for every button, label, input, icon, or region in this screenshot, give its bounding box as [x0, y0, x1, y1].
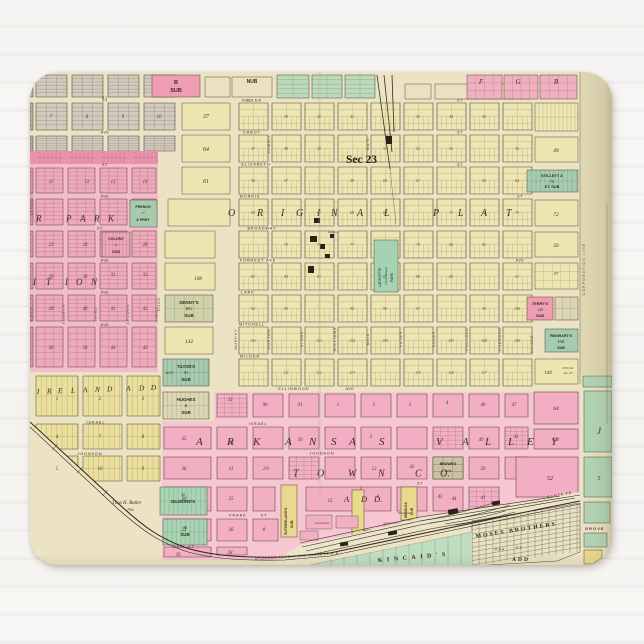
svg-text:SEVENTH: SEVENTH: [30, 192, 34, 215]
svg-text:SUB: SUB: [112, 250, 120, 254]
svg-text:47: 47: [512, 403, 517, 408]
svg-text:L: L: [484, 436, 491, 448]
svg-text:57: 57: [554, 271, 559, 276]
svg-text:ISRAEL: ISRAEL: [248, 422, 267, 426]
svg-text:88: 88: [416, 274, 420, 279]
svg-text:N: N: [90, 277, 98, 287]
svg-text:29: 29: [49, 275, 54, 280]
svg-text:Thos H. Butler: Thos H. Butler: [112, 501, 142, 506]
svg-text:A: A: [82, 385, 88, 394]
svg-text:39: 39: [284, 114, 288, 119]
svg-text:N: N: [308, 436, 317, 448]
svg-text:111: 111: [283, 370, 288, 375]
svg-text:R: R: [35, 214, 42, 224]
svg-text:72: 72: [553, 212, 559, 218]
svg-text:49: 49: [479, 438, 484, 443]
svg-text:B: B: [174, 80, 178, 86]
svg-text:ST: ST: [457, 163, 463, 167]
svg-text:Good luck: Good luck: [315, 521, 330, 525]
svg-text:AVE: AVE: [101, 259, 110, 263]
svg-text:37: 37: [202, 114, 210, 120]
svg-text:SUB: SUB: [536, 314, 544, 318]
svg-text:113: 113: [349, 370, 355, 375]
svg-text:27: 27: [114, 243, 118, 247]
svg-text:40: 40: [481, 403, 486, 408]
svg-text:ST: ST: [247, 99, 253, 103]
svg-text:95: 95: [350, 306, 354, 311]
svg-text:132: 132: [185, 339, 194, 345]
svg-text:28: 28: [143, 243, 148, 248]
svg-text:44: 44: [452, 497, 457, 502]
svg-text:23: 23: [49, 243, 54, 248]
svg-text:23: 23: [229, 441, 234, 446]
svg-text:AVE: AVE: [101, 323, 110, 327]
svg-text:91: 91: [298, 403, 303, 408]
svg-text:SUB: SUB: [181, 410, 190, 415]
svg-text:12: 12: [85, 180, 90, 185]
svg-text:ELIZABETH: ELIZABETH: [241, 163, 270, 167]
svg-text:WILLIAMS: WILLIAMS: [333, 327, 337, 351]
svg-text:JOHNSON: JOHNSON: [77, 452, 102, 456]
svg-text:93: 93: [284, 306, 288, 311]
svg-text:TILTON'S: TILTON'S: [177, 364, 195, 369]
svg-text:53: 53: [449, 146, 453, 151]
svg-text:41: 41: [481, 496, 486, 501]
svg-text:D: D: [360, 494, 368, 504]
svg-text:K: K: [107, 214, 115, 224]
svg-text:92: 92: [184, 370, 188, 375]
svg-text:69: 69: [383, 210, 387, 215]
svg-text:65: 65: [251, 210, 255, 215]
svg-text:41: 41: [111, 307, 116, 312]
svg-text:108: 108: [194, 277, 202, 282]
svg-text:Gas Co.: Gas Co.: [328, 230, 339, 234]
svg-text:49: 49: [553, 147, 559, 154]
svg-text:ST. SUB: ST. SUB: [545, 184, 560, 189]
svg-text:A: A: [195, 436, 203, 448]
svg-text:52: 52: [547, 476, 553, 482]
svg-text:ST: ST: [97, 227, 103, 231]
svg-text:MURPHY: MURPHY: [234, 329, 238, 350]
svg-text:ISRAEL: ISRAEL: [86, 421, 105, 425]
svg-text:61: 61: [203, 179, 209, 185]
svg-text:12: 12: [372, 467, 377, 472]
svg-text:52: 52: [416, 146, 420, 151]
svg-text:ST: ST: [457, 99, 463, 103]
svg-text:117: 117: [481, 370, 488, 375]
svg-text:BROWN'S: BROWN'S: [440, 462, 457, 466]
svg-text:73: 73: [515, 210, 519, 215]
svg-text:75: 75: [284, 242, 288, 247]
svg-text:FAR: FAR: [558, 340, 565, 344]
svg-text:AVE: AVE: [101, 291, 110, 295]
svg-text:MAIN: MAIN: [366, 333, 370, 346]
svg-text:HUBBARD: HUBBARD: [498, 327, 502, 351]
svg-text:BROADWAY: BROADWAY: [247, 227, 276, 231]
svg-text:92: 92: [251, 306, 255, 311]
svg-text:59: 59: [350, 178, 354, 183]
svg-text:24: 24: [83, 243, 88, 248]
svg-text:A: A: [125, 384, 131, 393]
svg-text:54: 54: [83, 346, 88, 351]
svg-text:ST: ST: [102, 163, 108, 167]
svg-text:41: 41: [514, 435, 519, 440]
svg-text:63: 63: [482, 178, 486, 183]
svg-text:R: R: [256, 208, 263, 219]
svg-text:THIRD: THIRD: [94, 306, 98, 321]
svg-text:OAK: OAK: [495, 548, 506, 552]
svg-text:AVE: AVE: [101, 131, 110, 135]
svg-text:70a: 70a: [127, 507, 135, 512]
svg-text:A: A: [348, 436, 356, 448]
svg-text:26: 26: [229, 528, 234, 533]
svg-text:DODD: DODD: [157, 297, 161, 311]
svg-text:HEIZER: HEIZER: [530, 335, 534, 354]
svg-text:80: 80: [449, 242, 453, 247]
svg-text:O: O: [228, 208, 235, 219]
svg-text:S: S: [331, 436, 337, 448]
svg-text:43: 43: [416, 114, 420, 119]
svg-text:Sec 23: Sec 23: [346, 154, 377, 166]
svg-text:64: 64: [553, 405, 559, 412]
svg-text:39: 39: [49, 307, 54, 312]
svg-text:99: 99: [482, 306, 486, 311]
svg-text:23: 23: [182, 528, 187, 533]
svg-text:S: S: [379, 436, 385, 448]
svg-text:DENNY'S: DENNY'S: [179, 300, 198, 305]
svg-text:L: L: [70, 386, 75, 395]
svg-text:WILDER: WILDER: [240, 355, 260, 359]
svg-text:48: 48: [284, 146, 288, 151]
svg-text:FIFTH: FIFTH: [30, 307, 34, 322]
svg-text:55: 55: [515, 146, 519, 151]
svg-text:Sec 23: Sec 23: [564, 371, 573, 375]
svg-text:CABOT: CABOT: [243, 131, 261, 135]
svg-text:79: 79: [416, 242, 420, 247]
svg-text:NUB: NUB: [247, 79, 258, 85]
svg-text:101: 101: [250, 338, 256, 343]
svg-text:43: 43: [143, 346, 148, 351]
svg-text:44: 44: [111, 346, 116, 351]
svg-text:31: 31: [111, 273, 116, 278]
svg-text:41: 41: [350, 114, 354, 119]
svg-text:F: F: [478, 78, 484, 86]
svg-text:20: 20: [298, 438, 303, 443]
svg-text:SUB: SUB: [181, 377, 190, 382]
svg-text:P: P: [432, 208, 439, 219]
svg-text:15: 15: [328, 499, 333, 504]
svg-text:D: D: [150, 383, 157, 392]
svg-text:64: 64: [515, 178, 519, 183]
svg-text:140: 140: [537, 308, 543, 312]
svg-text:10: 10: [98, 467, 103, 472]
svg-text:42: 42: [143, 307, 148, 312]
svg-text:109: 109: [514, 338, 520, 343]
svg-text:DELL ST: DELL ST: [173, 545, 195, 549]
svg-text:K: K: [252, 436, 261, 448]
svg-text:SUMMIT: SUMMIT: [267, 134, 271, 154]
svg-text:56: 56: [553, 243, 559, 249]
svg-text:MORRIS: MORRIS: [240, 195, 261, 199]
svg-text:R: R: [93, 214, 100, 224]
svg-text:SUB: SUB: [170, 88, 182, 94]
svg-text:SUB.: SUB.: [290, 520, 294, 528]
svg-text:1: 1: [337, 403, 339, 408]
svg-text:ST: ST: [457, 131, 463, 135]
svg-text:56: 56: [251, 178, 255, 183]
svg-text:R: R: [46, 386, 52, 395]
svg-text:N.E.Cor: N.E.Cor: [561, 366, 574, 370]
svg-text:1: 1: [56, 397, 58, 402]
svg-text:HEADLEA: HEADLEA: [404, 501, 408, 518]
svg-text:LAFAYETTE: LAFAYETTE: [378, 267, 382, 287]
svg-text:STONE: STONE: [300, 331, 304, 348]
svg-text:MITCHELL: MITCHELL: [239, 323, 265, 327]
svg-text:30: 30: [83, 275, 88, 280]
svg-text:89: 89: [449, 274, 453, 279]
svg-text:144: 144: [544, 371, 552, 376]
svg-text:TERRY'S: TERRY'S: [532, 302, 549, 306]
svg-text:FOURTH: FOURTH: [62, 304, 66, 324]
svg-text:43: 43: [438, 495, 443, 500]
svg-text:36: 36: [182, 467, 187, 472]
svg-text:2½: 2½: [263, 467, 269, 472]
svg-text:ST: ST: [417, 482, 423, 486]
svg-text:Standard: Standard: [398, 511, 411, 515]
svg-text:30: 30: [182, 497, 187, 502]
svg-text:C: C: [415, 469, 422, 480]
svg-text:ST: ST: [517, 195, 523, 199]
svg-text:N: N: [377, 469, 386, 480]
svg-text:44: 44: [449, 114, 453, 119]
svg-text:60: 60: [383, 178, 387, 183]
svg-text:PETER: PETER: [399, 331, 403, 347]
svg-text:45: 45: [482, 114, 486, 119]
svg-text:ELLINWOOD: ELLINWOOD: [278, 387, 309, 391]
svg-text:81: 81: [482, 242, 486, 247]
svg-text:42: 42: [410, 465, 415, 470]
svg-text:31: 31: [229, 467, 234, 472]
svg-text:SUB: SUB: [184, 313, 193, 318]
svg-text:11: 11: [49, 180, 53, 185]
svg-text:HUGHES: HUGHES: [177, 397, 196, 402]
svg-text:ST: ST: [261, 514, 268, 518]
svg-text:90: 90: [263, 403, 268, 408]
svg-text:BY: BY: [102, 96, 108, 100]
svg-text:100: 100: [514, 306, 520, 311]
svg-text:L: L: [457, 208, 464, 219]
svg-text:72: 72: [482, 210, 486, 215]
svg-text:105: 105: [382, 338, 388, 343]
svg-text:51: 51: [383, 146, 387, 151]
svg-text:A: A: [343, 494, 350, 504]
svg-text:A: A: [356, 208, 364, 219]
svg-text:SUB: SUB: [557, 346, 565, 350]
svg-text:B: B: [554, 78, 559, 86]
svg-text:115: 115: [415, 370, 421, 375]
svg-text:O.: O.: [440, 469, 450, 480]
svg-text:A: A: [79, 214, 86, 224]
svg-text:A: A: [284, 436, 292, 448]
svg-text:108: 108: [481, 338, 487, 343]
svg-text:MAIN: MAIN: [366, 138, 370, 151]
svg-text:& FREY: & FREY: [136, 218, 150, 222]
svg-text:BIG: BIG: [186, 306, 193, 311]
svg-text:SUB: SUB: [410, 507, 414, 515]
svg-text:71: 71: [449, 210, 453, 215]
svg-text:REINHART'S: REINHART'S: [550, 334, 572, 338]
svg-text:68: 68: [350, 210, 354, 215]
svg-text:G: G: [296, 208, 303, 219]
svg-text:25: 25: [229, 497, 234, 502]
svg-text:BAKER: BAKER: [432, 331, 436, 348]
svg-text:32: 32: [143, 273, 148, 278]
svg-text:64: 64: [203, 146, 209, 153]
svg-text:A: A: [461, 436, 469, 448]
svg-text:NORTON: NORTON: [267, 329, 271, 350]
svg-text:SUTHERLAND'S: SUTHERLAND'S: [284, 507, 288, 535]
svg-text:D: D: [106, 384, 113, 393]
svg-text:AVE: AVE: [166, 371, 175, 375]
svg-text:N: N: [330, 208, 339, 219]
svg-text:SECOND: SECOND: [126, 304, 130, 325]
svg-text:84: 84: [284, 274, 288, 279]
svg-text:G: G: [515, 78, 520, 86]
svg-text:96: 96: [383, 306, 387, 311]
svg-text:FRANK: FRANK: [229, 514, 247, 518]
svg-text:STILLETT A: STILLETT A: [541, 173, 563, 178]
svg-text:JOHNSON: JOHNSON: [309, 452, 334, 456]
svg-text:E: E: [526, 436, 534, 448]
svg-text:56: 56: [49, 346, 54, 351]
svg-text:D: D: [138, 383, 145, 392]
svg-text:91: 91: [515, 274, 519, 279]
svg-text:ST: ST: [516, 546, 523, 550]
svg-text:35: 35: [182, 437, 187, 442]
svg-text:HOLLAND: HOLLAND: [465, 327, 469, 350]
svg-text:83: 83: [251, 274, 255, 279]
svg-text:107: 107: [448, 338, 455, 343]
svg-text:61: 61: [416, 178, 420, 183]
svg-text:14: 14: [143, 180, 148, 185]
svg-text:50: 50: [481, 467, 486, 472]
svg-text:13: 13: [111, 180, 116, 185]
svg-text:AVE: AVE: [101, 195, 110, 199]
svg-text:40: 40: [83, 307, 88, 312]
svg-text:116: 116: [448, 370, 454, 375]
svg-text:AVE: AVE: [516, 259, 525, 263]
svg-text:104: 104: [349, 338, 355, 343]
svg-text:10: 10: [157, 115, 162, 120]
svg-text:I: I: [280, 208, 285, 219]
svg-text:AVE: AVE: [346, 387, 355, 391]
svg-text:E: E: [57, 386, 63, 395]
svg-text:32: 32: [228, 398, 233, 403]
svg-text:COLONY: COLONY: [108, 237, 124, 241]
svg-text:FORREST AVE: FORREST AVE: [240, 259, 276, 263]
svg-text:P: P: [65, 214, 72, 224]
svg-text:77: 77: [141, 211, 145, 215]
svg-text:PARK: PARK: [390, 272, 394, 282]
svg-text:LARK: LARK: [241, 291, 255, 295]
svg-text:FRENCH: FRENCH: [135, 205, 151, 209]
